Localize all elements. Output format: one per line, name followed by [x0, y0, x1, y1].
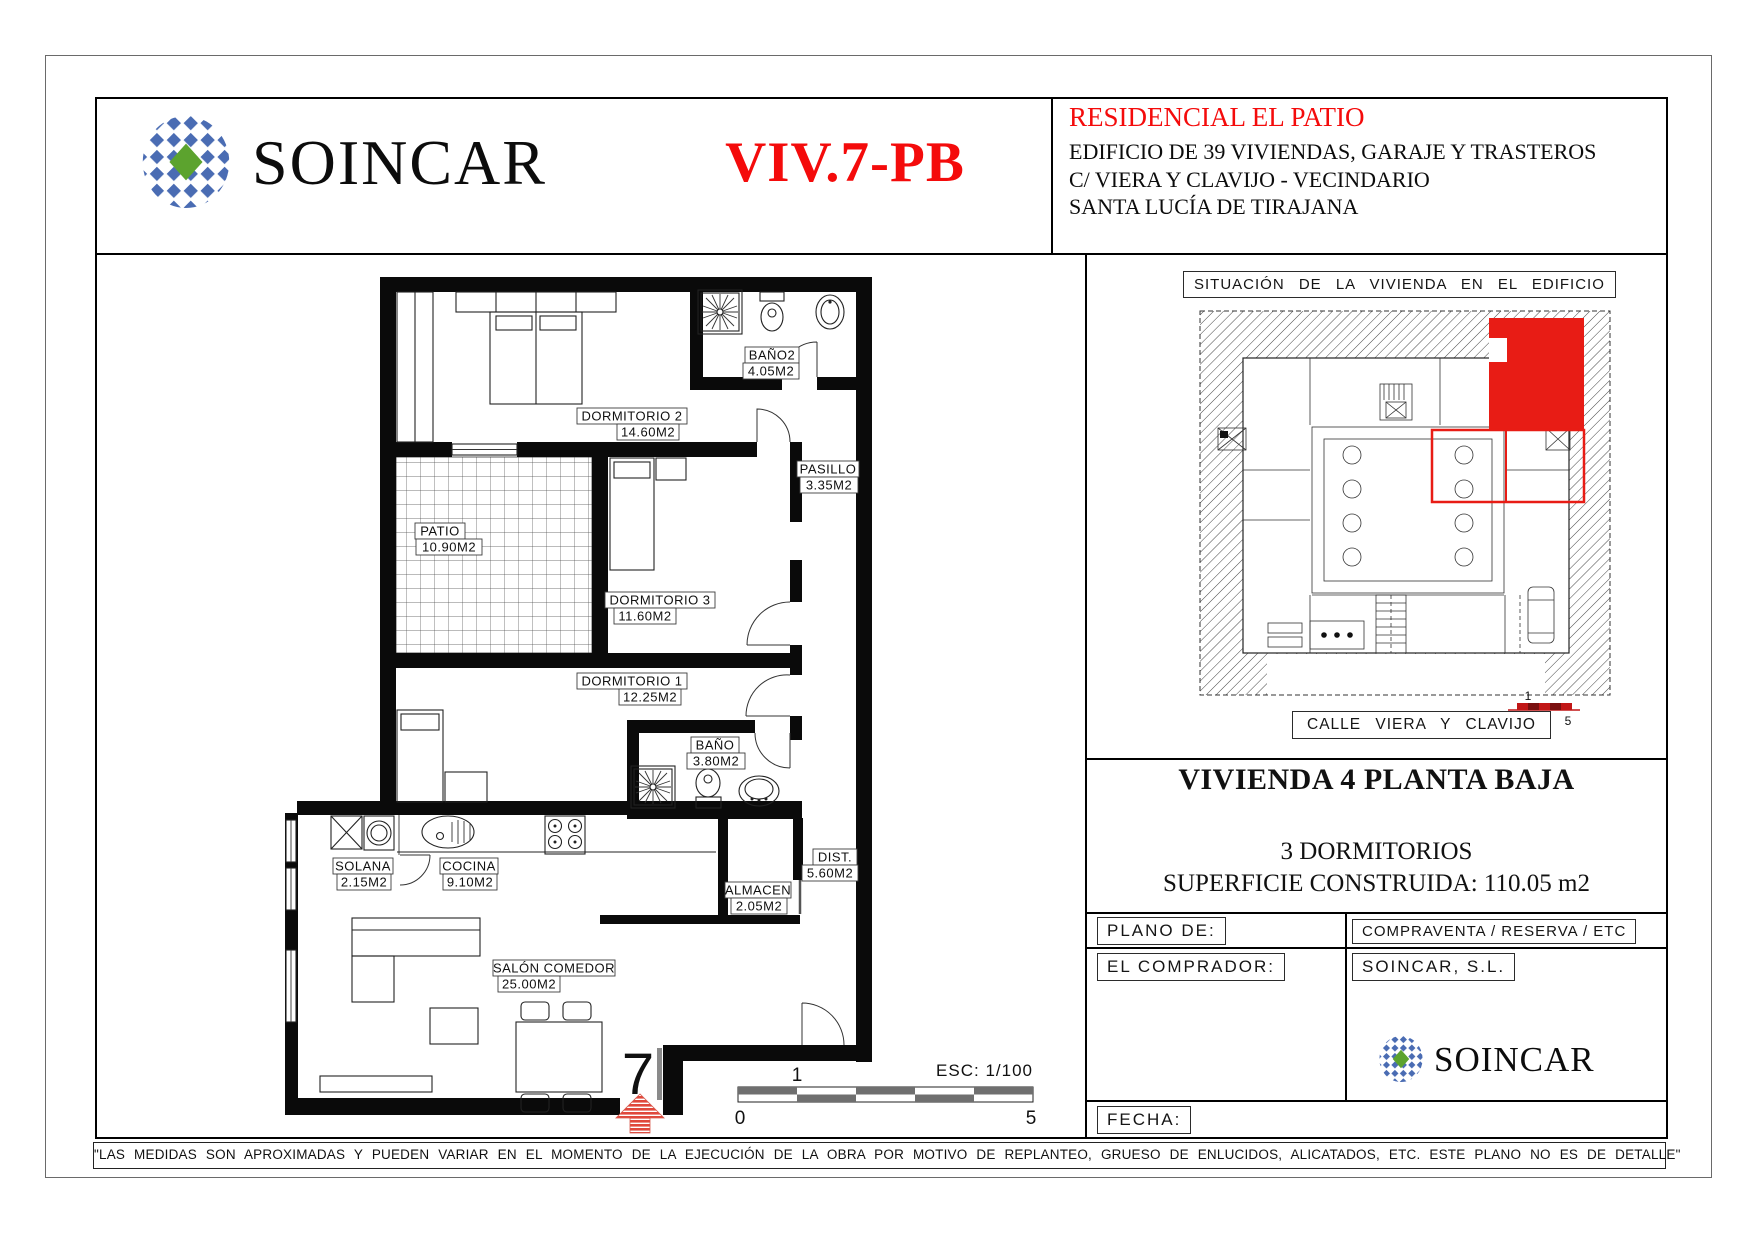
svg-text:DORMITORIO 1: DORMITORIO 1 [581, 674, 682, 689]
room-label-salon: SALÓN COMEDOR25.00M2 [493, 960, 615, 992]
situation-title: SITUACIÓN DE LA VIVIENDA EN EL EDIFICIO [1183, 271, 1616, 298]
plan-type-label: COMPRAVENTA / RESERVA / ETC [1352, 919, 1636, 944]
svg-text:4.05M2: 4.05M2 [748, 364, 794, 379]
svg-text:5.60M2: 5.60M2 [807, 866, 853, 881]
svg-text:DORMITORIO 3: DORMITORIO 3 [609, 593, 710, 608]
room-label-almacen: ALMACEN2.05M2 [725, 882, 791, 914]
project-line2: C/ VIERA Y CLAVIJO - VECINDARIO [1069, 166, 1659, 194]
disclaimer-note: "LAS MEDIDAS SON APROXIMADAS Y PUEDEN VA… [93, 1142, 1666, 1169]
unit-code: VIV.7-PB [705, 126, 985, 200]
svg-text:PASILLO: PASILLO [800, 462, 857, 477]
room-label-pasillo: PASILLO3.35M2 [797, 461, 859, 493]
header-divider [1051, 99, 1053, 253]
svg-text:BAÑO: BAÑO [696, 738, 735, 753]
svg-text:1: 1 [1525, 689, 1532, 703]
svg-text:25.00M2: 25.00M2 [502, 977, 556, 992]
soincar-logo-small-icon [1378, 1036, 1424, 1082]
section-rule-2 [1087, 912, 1666, 914]
svg-text:2.05M2: 2.05M2 [736, 899, 782, 914]
svg-text:5: 5 [1026, 1108, 1037, 1129]
room-label-banio2: BAÑO24.05M2 [743, 347, 799, 379]
svg-text:ESC: 1/100: ESC: 1/100 [936, 1061, 1033, 1080]
svg-text:12.25M2: 12.25M2 [623, 690, 677, 705]
company-label: SOINCAR, S.L. [1352, 953, 1515, 981]
svg-text:3.80M2: 3.80M2 [693, 754, 739, 769]
situation-plan: 1 0 5 [1195, 305, 1618, 733]
svg-text:SALÓN COMEDOR: SALÓN COMEDOR [493, 961, 615, 976]
room-label-dormitorio2: DORMITORIO 214.60M2 [577, 408, 687, 440]
room-label-dormitorio1: DORMITORIO 112.25M2 [577, 673, 687, 705]
project-block: RESIDENCIAL EL PATIO EDIFICIO DE 39 VIVI… [1069, 102, 1659, 221]
surface-line: SUPERFICIE CONSTRUIDA: 110.05 m2 [1087, 870, 1666, 898]
svg-text:9.10M2: 9.10M2 [447, 875, 493, 890]
bedrooms-line: 3 DORMITORIOS [1087, 838, 1666, 866]
svg-text:ALMACEN: ALMACEN [725, 883, 791, 898]
svg-text:2.15M2: 2.15M2 [341, 875, 387, 890]
svg-text:0: 0 [735, 1108, 746, 1129]
dwelling-title: VIVIENDA 4 PLANTA BAJA [1087, 763, 1666, 797]
section-rule [1087, 758, 1666, 760]
svg-text:10.90M2: 10.90M2 [422, 540, 476, 555]
room-label-cocina: COCINA9.10M2 [440, 858, 498, 890]
svg-text:BAÑO2: BAÑO2 [749, 348, 796, 363]
svg-text:SOLANA: SOLANA [335, 859, 391, 874]
soincar-logo-icon [138, 116, 234, 208]
scale-bar: ESC: 1/100 1 0 5 [735, 1061, 1037, 1129]
svg-text:DIST.: DIST. [818, 850, 852, 865]
street-label: CALLE VIERA Y CLAVIJO [1292, 711, 1551, 739]
brand-name: SOINCAR [252, 118, 547, 208]
walls [285, 277, 872, 1115]
svg-text:DORMITORIO 2: DORMITORIO 2 [581, 409, 682, 424]
svg-text:14.60M2: 14.60M2 [621, 425, 675, 440]
company-brand-name: SOINCAR [1434, 1038, 1595, 1082]
room-label-solana: SOLANA2.15M2 [333, 858, 393, 890]
plan-sheet: SOINCAR VIV.7-PB RESIDENCIAL EL PATIO ED… [0, 0, 1755, 1240]
svg-text:5: 5 [1565, 714, 1572, 728]
project-line3: SANTA LUCÍA DE TIRAJANA [1069, 193, 1659, 221]
svg-text:COCINA: COCINA [442, 859, 496, 874]
info-column-divider [1345, 912, 1347, 1100]
project-title: RESIDENCIAL EL PATIO [1069, 102, 1659, 133]
svg-text:1: 1 [792, 1065, 803, 1086]
section-rule-3 [1087, 947, 1666, 949]
room-label-dist: DIST.5.60M2 [802, 849, 858, 881]
project-line1: EDIFICIO DE 39 VIVIENDAS, GARAJE Y TRAST… [1069, 138, 1659, 166]
buyer-label: EL COMPRADOR: [1097, 953, 1285, 981]
section-rule-4 [1087, 1100, 1666, 1102]
panel-divider [1085, 253, 1087, 1137]
svg-text:PATIO: PATIO [420, 524, 460, 539]
floor-plan: BAÑO24.05M2 DORMITORIO 214.60M2 PASILLO3… [97, 254, 1085, 1137]
svg-text:3.35M2: 3.35M2 [806, 478, 852, 493]
room-label-dormitorio3: DORMITORIO 311.60M2 [605, 592, 715, 624]
svg-text:11.60M2: 11.60M2 [618, 609, 671, 624]
fecha-label: FECHA: [1097, 1106, 1191, 1134]
room-label-banio: BAÑO3.80M2 [687, 737, 745, 769]
plano-de-label: PLANO DE: [1097, 917, 1226, 945]
